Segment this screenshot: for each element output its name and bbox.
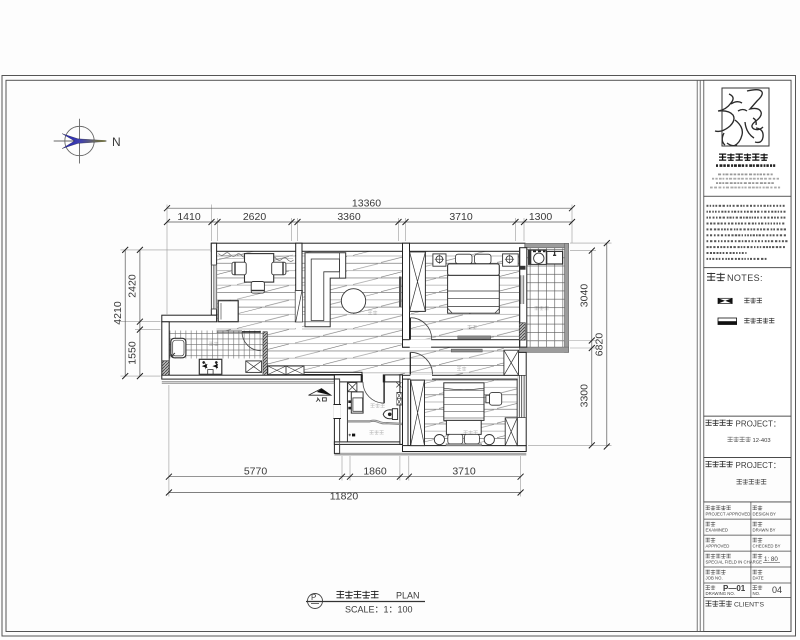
svg-text:2420: 2420 — [127, 274, 139, 298]
svg-text:P—01: P—01 — [723, 584, 746, 593]
svg-text:EXAMINED: EXAMINED — [706, 527, 728, 532]
svg-text:13360: 13360 — [352, 197, 381, 209]
svg-text:PROJECT APPROVED: PROJECT APPROVED — [706, 511, 751, 516]
svg-text:3710: 3710 — [449, 211, 473, 223]
svg-text:04: 04 — [772, 585, 782, 595]
svg-text:1300: 1300 — [529, 211, 553, 223]
svg-text:NO.: NO. — [753, 591, 761, 596]
svg-text:DESIGN BY: DESIGN BY — [753, 511, 777, 516]
svg-text:DATE: DATE — [753, 575, 764, 580]
svg-text:CLIENT'S: CLIENT'S — [734, 602, 764, 609]
svg-text:1860: 1860 — [363, 466, 387, 478]
svg-text:N: N — [112, 135, 121, 149]
svg-text:PLAN: PLAN — [396, 591, 420, 601]
svg-text:PROJECT：: PROJECT： — [736, 461, 781, 470]
svg-text:3040: 3040 — [578, 284, 590, 308]
svg-text:DRAWN BY: DRAWN BY — [753, 527, 776, 532]
svg-text:6820: 6820 — [593, 333, 605, 357]
svg-text:CHECKED BY: CHECKED BY — [753, 543, 781, 548]
svg-text:12-403: 12-403 — [753, 438, 771, 444]
svg-text:SCALE：1：100: SCALE：1：100 — [345, 605, 413, 615]
svg-text:3360: 3360 — [337, 211, 361, 223]
svg-text:APPROVED: APPROVED — [706, 543, 730, 548]
svg-text:5770: 5770 — [244, 466, 268, 478]
svg-text:2620: 2620 — [243, 211, 267, 223]
svg-text:3710: 3710 — [452, 466, 476, 478]
svg-text:1: 80: 1: 80 — [764, 556, 778, 563]
svg-text:1410: 1410 — [177, 211, 201, 223]
svg-text:NOTES:: NOTES: — [727, 273, 763, 283]
svg-text:3300: 3300 — [578, 384, 590, 408]
svg-text:11820: 11820 — [330, 491, 359, 503]
svg-text:4210: 4210 — [112, 301, 124, 325]
svg-text:PROJECT：: PROJECT： — [736, 420, 781, 429]
svg-text:JOB NO.: JOB NO. — [706, 575, 723, 580]
svg-text:P: P — [311, 593, 316, 602]
svg-text:1550: 1550 — [127, 341, 139, 365]
svg-text:SPECIAL FIELD IN CHARGE: SPECIAL FIELD IN CHARGE — [706, 559, 763, 564]
